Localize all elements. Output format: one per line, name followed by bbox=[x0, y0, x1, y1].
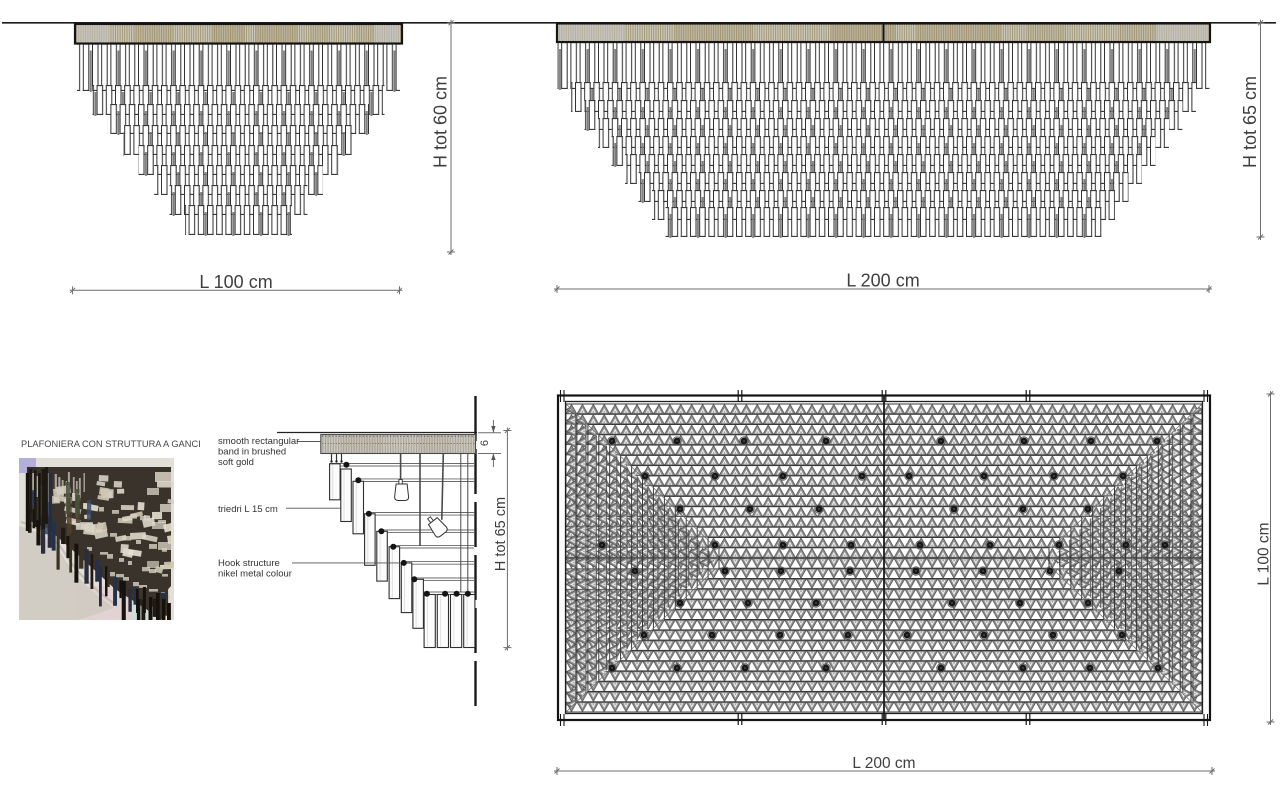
svg-text:L 100 cm: L 100 cm bbox=[1256, 522, 1273, 585]
svg-text:nikel metal colour: nikel metal colour bbox=[218, 569, 292, 580]
svg-text:H tot 65 cm: H tot 65 cm bbox=[1240, 76, 1260, 168]
svg-text:PLAFONIERA CON STRUTTURA A GAN: PLAFONIERA CON STRUTTURA A GANCI bbox=[21, 439, 201, 449]
svg-text:6: 6 bbox=[479, 440, 491, 446]
svg-text:soft gold: soft gold bbox=[218, 457, 254, 468]
svg-text:L 200 cm: L 200 cm bbox=[846, 271, 919, 291]
svg-text:smooth rectangular: smooth rectangular bbox=[218, 436, 299, 447]
svg-text:Hook structure: Hook structure bbox=[218, 558, 280, 569]
svg-text:L 100 cm: L 100 cm bbox=[199, 272, 272, 292]
svg-text:L 200 cm: L 200 cm bbox=[852, 755, 915, 772]
svg-text:H tot 65 cm: H tot 65 cm bbox=[493, 497, 509, 571]
svg-text:H tot 60 cm: H tot 60 cm bbox=[431, 76, 451, 168]
svg-text:triedri L 15 cm: triedri L 15 cm bbox=[218, 504, 278, 515]
svg-text:band in brushed: band in brushed bbox=[218, 447, 286, 458]
